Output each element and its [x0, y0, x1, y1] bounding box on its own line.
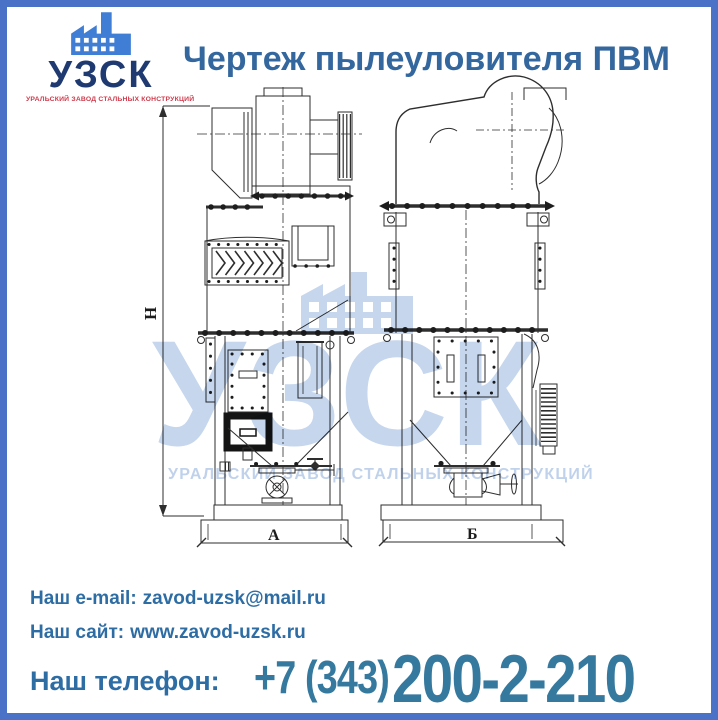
dimension-height: H: [141, 106, 210, 516]
phone-number: 200-2-210: [392, 640, 634, 718]
email-value[interactable]: zavod-uzsk@mail.ru: [143, 588, 326, 609]
site-line: Наш сайт:www.zavod-uzsk.ru: [30, 622, 306, 644]
email-line: Наш e-mail:zavod-uzsk@mail.ru: [30, 588, 326, 610]
email-label: Наш e-mail:: [30, 588, 137, 609]
site-label: Наш сайт:: [30, 622, 124, 643]
logo-name: УЗСК: [26, 56, 176, 94]
dim-front-width-label: А: [268, 527, 280, 544]
logo: УЗСК УРАЛЬСКИЙ ЗАВОД СТАЛЬНЫХ КОНСТРУКЦИ…: [26, 8, 176, 103]
logo-subtitle: УРАЛЬСКИЙ ЗАВОД СТАЛЬНЫХ КОНСТРУКЦИЙ: [26, 96, 176, 103]
side-view: Б: [379, 76, 566, 546]
page: H: [0, 0, 718, 720]
factory-icon: [69, 8, 133, 55]
front-view: А: [197, 87, 362, 547]
phone-label: Наш телефон:: [30, 666, 220, 697]
site-value[interactable]: www.zavod-uzsk.ru: [130, 622, 306, 643]
dim-side-width-label: Б: [467, 526, 478, 543]
page-title: Чертеж пылеуловителя ПВМ: [183, 40, 670, 79]
phone-area-code: +7 (343): [254, 650, 389, 704]
technical-drawing: H: [0, 0, 718, 720]
dim-height-label: H: [141, 307, 160, 320]
